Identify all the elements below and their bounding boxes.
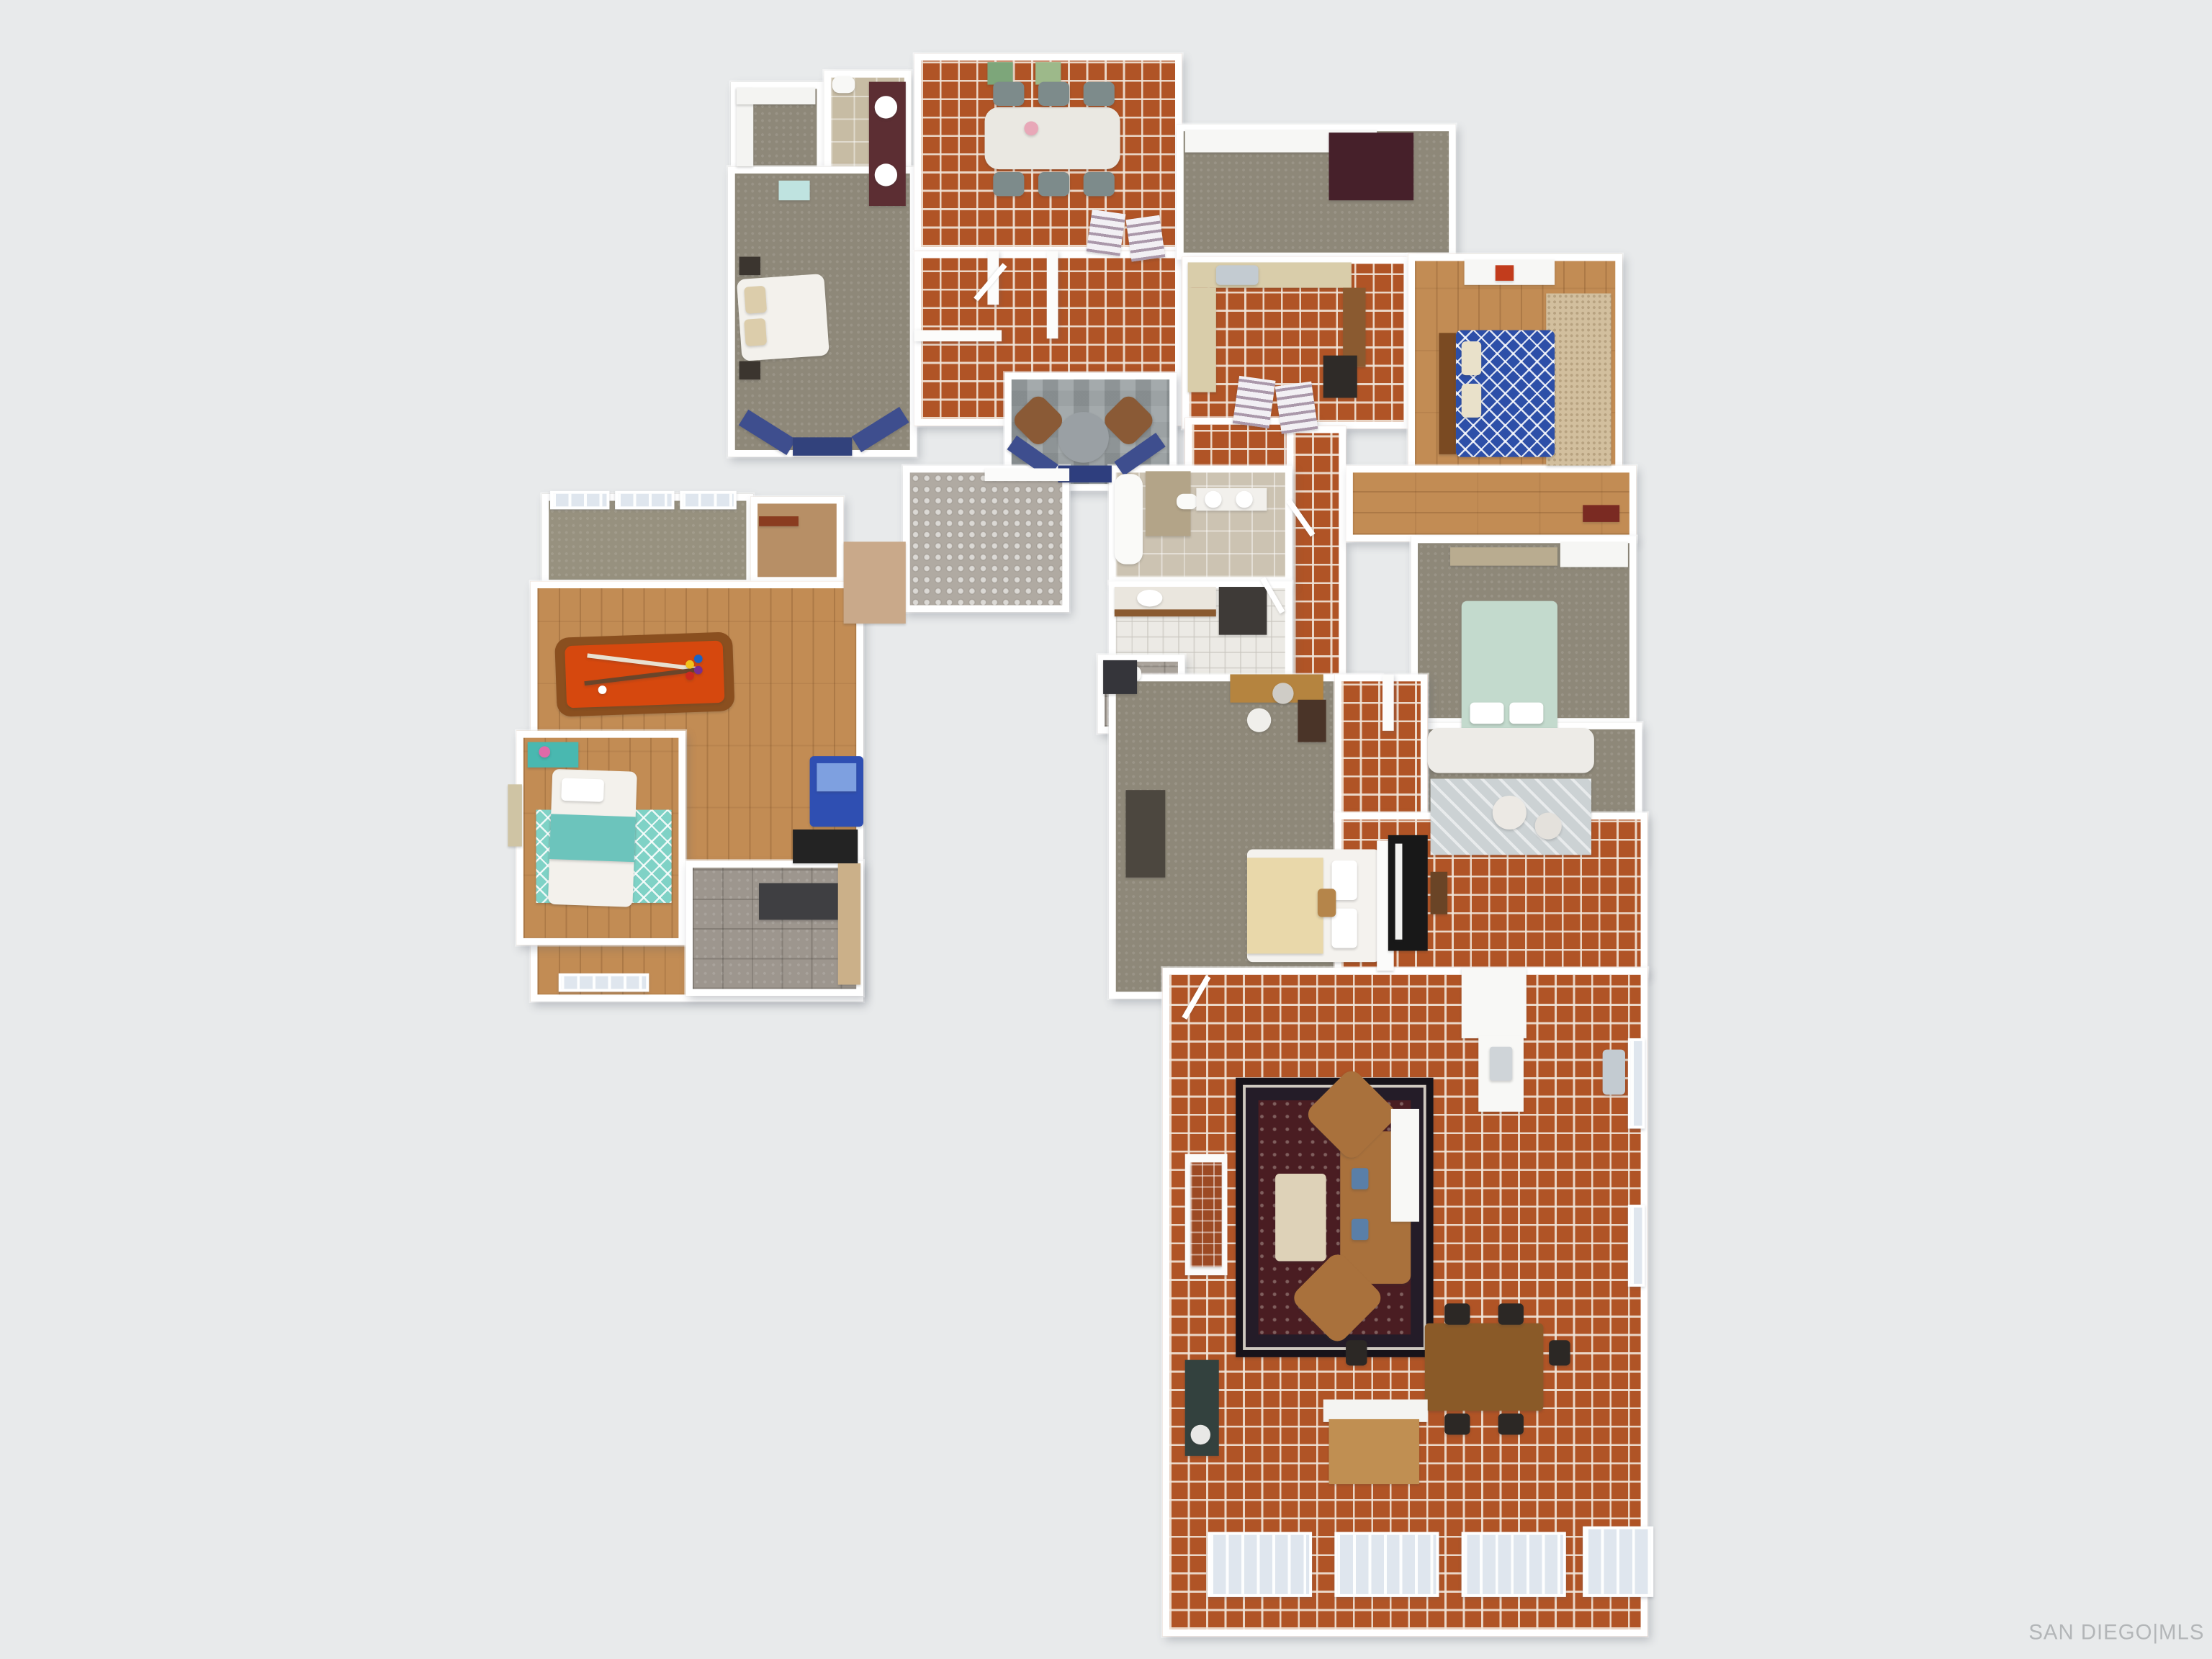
coffee-table	[1275, 1174, 1326, 1261]
counter-granite	[1188, 288, 1216, 392]
counter-granite	[1188, 262, 1352, 287]
louver-door	[1087, 210, 1126, 256]
wall-art	[1450, 547, 1557, 565]
dining-chair	[1084, 82, 1115, 106]
island-body	[1329, 1419, 1419, 1484]
louver-door	[1125, 215, 1165, 262]
toilet	[1177, 494, 1197, 510]
louver-door	[1275, 382, 1318, 434]
pinball-screen	[817, 763, 856, 791]
bed-pillow	[1509, 703, 1543, 724]
window	[1462, 1532, 1566, 1597]
shower-dark	[1103, 660, 1137, 694]
bed-blanket-teal	[549, 814, 636, 862]
counter-white	[1462, 968, 1527, 1038]
bed-blanket-cream	[1247, 858, 1323, 953]
wall-stub	[914, 330, 1002, 341]
bed-pillow	[1470, 703, 1503, 724]
window	[1583, 1527, 1653, 1597]
entry-porch	[903, 466, 1069, 613]
vanity-wood-base	[1115, 609, 1216, 616]
dining-chair-dark	[1444, 1413, 1470, 1434]
bed-headboard	[1439, 333, 1456, 454]
pool-balls	[685, 660, 694, 669]
dining-chair-dark	[1498, 1413, 1524, 1434]
dining-chair-dark	[1549, 1340, 1570, 1365]
sink-oval	[1137, 590, 1162, 607]
window	[1334, 1532, 1439, 1597]
sink-bowl	[1236, 491, 1253, 508]
wall-stub	[1382, 674, 1394, 730]
counter-white	[1391, 1109, 1419, 1222]
cabinet-maroon	[1329, 132, 1414, 200]
dining-chair	[993, 172, 1024, 196]
concrete-pad	[844, 541, 906, 624]
kitchenette	[685, 860, 863, 996]
dining-chair-dark	[1346, 1340, 1367, 1365]
shower-mosaic	[1219, 587, 1267, 635]
dining-chair-dark	[1444, 1303, 1470, 1324]
deck	[750, 497, 843, 584]
bed-pillow	[744, 318, 767, 346]
closet-dark	[1125, 790, 1165, 877]
wall-art	[508, 784, 522, 846]
window	[550, 491, 609, 509]
window	[1208, 1532, 1312, 1597]
nightstand	[739, 361, 760, 379]
side-table	[1535, 812, 1562, 839]
console-dark	[793, 829, 858, 863]
desk-chair	[1247, 709, 1271, 732]
dining-table-marble	[985, 107, 1120, 169]
bed-pillow	[1462, 341, 1481, 375]
pool-balls	[694, 655, 703, 663]
sink-bowl	[875, 163, 897, 186]
dining-chair	[1084, 172, 1115, 196]
dining-chair	[1038, 82, 1069, 106]
dining-chair	[993, 82, 1024, 106]
accent-pillow	[1318, 889, 1336, 917]
cue-ball	[598, 685, 607, 694]
dining-table-wood	[1425, 1323, 1544, 1411]
page: { "watermark": { "text": "SAN DIEGO|MLS"…	[0, 0, 2212, 1659]
pool-balls	[685, 672, 694, 680]
louver-door	[1233, 376, 1276, 428]
sofa-pillow-blue	[1352, 1219, 1369, 1240]
piano-keys	[1395, 844, 1403, 940]
piano-upright	[1388, 835, 1428, 951]
floor-plan-canvas: SAN DIEGO|MLS	[0, 0, 2212, 1659]
pool-balls	[694, 666, 703, 675]
decor-round-white	[1191, 1425, 1210, 1444]
kitchen-sink-double	[1603, 1050, 1625, 1095]
decor-red	[1496, 265, 1514, 281]
mls-watermark: SAN DIEGO|MLS	[2028, 1621, 2203, 1645]
nightstand	[739, 257, 760, 275]
cue-rack	[759, 516, 799, 526]
window	[680, 491, 736, 509]
wardrobe-dark	[1298, 700, 1326, 742]
fireplace-brick	[1191, 1162, 1222, 1267]
window	[615, 491, 674, 509]
closet-shelves	[737, 87, 816, 104]
decor-pink	[539, 746, 550, 757]
sink-bowl	[1205, 491, 1222, 508]
side-table	[1493, 796, 1527, 829]
window	[1628, 1205, 1645, 1287]
hall-tile-c	[1334, 674, 1427, 821]
vanity-mirror	[1272, 683, 1293, 703]
piano-bench	[1431, 872, 1448, 914]
desk-teal	[528, 742, 579, 768]
sink-bowl	[875, 96, 897, 118]
hall-wood	[1346, 466, 1637, 542]
round-table	[1058, 412, 1109, 463]
window	[559, 974, 649, 992]
stair-railing	[985, 468, 1070, 481]
dining-chair-dark	[1498, 1303, 1524, 1324]
vanity-marble	[1115, 587, 1216, 612]
toilet	[832, 76, 855, 94]
closet-carpet	[1546, 294, 1611, 466]
closet-shelves	[1560, 541, 1628, 567]
bathtub	[1115, 474, 1143, 564]
bay-window-sill	[793, 437, 852, 455]
bed-pillow	[561, 778, 604, 801]
sofa-white	[1428, 728, 1594, 773]
wall-art-teal	[778, 181, 809, 200]
bed-pillow	[1462, 384, 1481, 418]
bench-red	[1583, 505, 1619, 522]
wall-stub	[1047, 251, 1058, 338]
sofa-pillow-blue	[1352, 1168, 1369, 1189]
kitchen-sink-double	[1216, 265, 1259, 284]
range-dark	[1323, 356, 1357, 398]
dining-chair	[1038, 172, 1069, 196]
cooktop	[1490, 1047, 1512, 1081]
table-flowers	[1024, 121, 1038, 135]
cabinet-tan	[838, 863, 860, 984]
window	[1628, 1038, 1645, 1128]
bed-pillow	[744, 286, 767, 314]
